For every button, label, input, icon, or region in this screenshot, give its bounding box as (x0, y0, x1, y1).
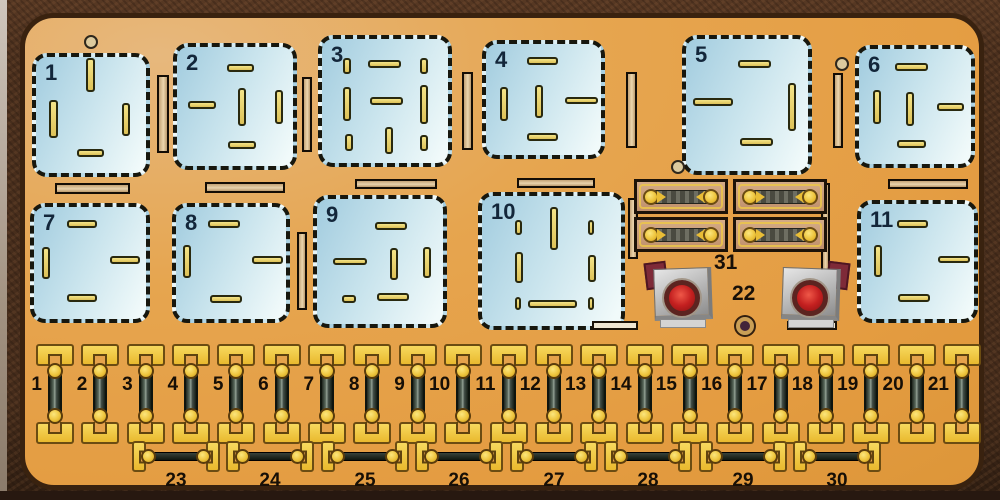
fuse-cap-bottom (546, 408, 562, 424)
relay-pin-slot (588, 220, 594, 235)
relay-number: 6 (868, 52, 880, 78)
holder-cap-right (703, 189, 719, 205)
relay-pin-slot (423, 247, 431, 278)
connector-bar-vertical (833, 73, 843, 148)
fuse-cap-right (574, 449, 589, 464)
fuse-8: 8 (352, 344, 392, 448)
fuse-12: 12 (534, 344, 574, 448)
fuse-number: 30 (793, 470, 881, 492)
relay-pin-slot (693, 98, 733, 106)
relay-pin-slot (515, 252, 523, 283)
relay-pin-slot (588, 297, 594, 310)
relay-pin-slot (228, 141, 256, 149)
relay-pin-slot (210, 295, 242, 303)
fuse-number: 10 (410, 374, 450, 396)
fuse-6: 6 (262, 344, 302, 448)
fuse-19: 19 (851, 344, 891, 448)
fuse-cap-bottom (319, 408, 335, 424)
fuse-10: 10 (443, 344, 483, 448)
relay-pin-slot (515, 220, 522, 235)
fuse-cap-bottom (410, 408, 426, 424)
fuse-number: 8 (319, 374, 359, 396)
connector-bar-horizontal (888, 179, 968, 189)
fuse-4: 4 (171, 344, 211, 448)
connector-bar-small (592, 321, 638, 330)
relay-pin-slot (738, 60, 771, 68)
connector-bar-vertical (302, 77, 312, 152)
fuse-16: 16 (715, 344, 755, 448)
fuse-number: 26 (415, 470, 503, 492)
test-point-22 (736, 317, 754, 335)
fuse-cap-bottom (954, 408, 970, 424)
relay-pin-slot (375, 222, 407, 230)
fuse-number: 2 (47, 374, 87, 396)
fuse-26: 26 (415, 441, 503, 491)
relay-pin-slot (897, 140, 926, 148)
main-fuse-holder (733, 179, 827, 214)
connector-bar-vertical (626, 72, 637, 148)
diagram-content: 31 22 1234567891011123456789101112131415… (0, 0, 1000, 500)
fuse-11: 11 (489, 344, 529, 448)
fuse-cap-bottom (138, 408, 154, 424)
fuse-cap-right (290, 449, 305, 464)
test-point-label: 22 (732, 282, 755, 306)
connector-bar-vertical (297, 232, 307, 310)
fuse-cap-left (424, 449, 439, 464)
fuse-cap-left (141, 449, 156, 464)
holder-cap-arrow-left (756, 191, 765, 203)
relay-pin-slot (500, 87, 508, 121)
fuse-number: 25 (321, 470, 409, 492)
relay-pin-slot (275, 90, 283, 124)
fuse-20: 20 (897, 344, 937, 448)
relay-pin-slot (588, 255, 596, 282)
mount-hole (835, 57, 849, 71)
fuse-cap-right (763, 449, 778, 464)
relay-pin-slot (227, 64, 254, 72)
fuse-number: 9 (365, 374, 405, 396)
fuse-number: 15 (637, 374, 677, 396)
relay-pin-slot (238, 88, 246, 126)
fuse-27: 27 (510, 441, 598, 491)
fuse-cap-bottom (773, 408, 789, 424)
fuse-7: 7 (307, 344, 347, 448)
fuse-number: 16 (682, 374, 722, 396)
holder-cap-right (802, 227, 818, 243)
fuse-number: 5 (183, 374, 223, 396)
relay-pin-slot (188, 101, 216, 109)
relay-pin-slot (345, 134, 353, 151)
button-component (776, 262, 846, 330)
fuse-number: 1 (2, 374, 42, 396)
relay-pin-slot (565, 97, 598, 104)
fuse-cap-right (857, 449, 872, 464)
relay-pin-slot (342, 295, 356, 303)
relay-pin-slot (110, 256, 140, 264)
fuse-number: 6 (229, 374, 269, 396)
fuse-bracket-bottom (943, 422, 981, 444)
fuse-number: 4 (138, 374, 178, 396)
relay-pin-slot (67, 294, 97, 302)
relay-number: 7 (43, 210, 55, 236)
relay-pin-slot (788, 83, 796, 131)
fuse-cap-bottom (274, 408, 290, 424)
relay-pin-slot (42, 247, 50, 279)
relay-number: 1 (45, 60, 57, 86)
fuse-cap-top (954, 363, 970, 379)
relay-pin-slot (420, 58, 428, 74)
relay-pin-slot (67, 220, 97, 228)
fuse-cap-bottom (909, 408, 925, 424)
relay-pin-slot (390, 248, 398, 280)
fuse-cap-bottom (47, 408, 63, 424)
fuse-number: 13 (546, 374, 586, 396)
relay-pin-slot (740, 138, 773, 146)
fuse-number: 28 (604, 470, 692, 492)
fuse-number: 17 (728, 374, 768, 396)
fuse-15: 15 (670, 344, 710, 448)
main-fuse-holder (634, 217, 728, 252)
fuse-number: 12 (501, 374, 541, 396)
holder-cap-arrow-left (657, 191, 666, 203)
fuse-bracket-bottom (81, 422, 119, 444)
fuse-5: 5 (216, 344, 256, 448)
fuse-number: 20 (864, 374, 904, 396)
fuse-cap-right (668, 449, 683, 464)
relay-pin-slot (938, 256, 970, 263)
component-base (660, 319, 706, 328)
relay-pin-slot (343, 58, 351, 74)
fuse-bracket-bottom (36, 422, 74, 444)
fuse-cap-bottom (183, 408, 199, 424)
mount-hole (84, 35, 98, 49)
fuse-cap-bottom (682, 408, 698, 424)
button-component (648, 262, 718, 330)
relay-pin-slot (208, 220, 240, 228)
fuse-28: 28 (604, 441, 692, 491)
relay-pin-slot (86, 58, 95, 92)
red-button (664, 280, 700, 316)
fuse-cap-left (613, 449, 628, 464)
holder-cap-right (802, 189, 818, 205)
fuse-cap-right (385, 449, 400, 464)
fuse-bracket-bottom (898, 422, 936, 444)
relay-pin-slot (370, 97, 403, 105)
fuse-number: 23 (132, 470, 220, 492)
connector-bar-horizontal (517, 178, 595, 188)
relay-pin-slot (535, 85, 543, 118)
fuse-cap-left (519, 449, 534, 464)
fuse-cap-left (802, 449, 817, 464)
fuse-cap-left (708, 449, 723, 464)
fuse-21: 21 (942, 344, 982, 448)
fuse-17: 17 (761, 344, 801, 448)
relay-pin-slot (528, 300, 577, 308)
fuse-23: 23 (132, 441, 220, 491)
connector-bar-horizontal (355, 179, 437, 189)
relay-number: 2 (186, 50, 198, 76)
fuse-14: 14 (625, 344, 665, 448)
fuse-cap-right (196, 449, 211, 464)
relay-pin-slot (937, 103, 964, 111)
relay-pin-slot (897, 220, 928, 228)
red-button (792, 280, 828, 316)
relay-pin-slot (377, 293, 409, 301)
fuse-cap-left (235, 449, 250, 464)
relay-number: 4 (495, 47, 507, 73)
relay-pin-slot (333, 258, 367, 265)
fuse-18: 18 (806, 344, 846, 448)
fuse-2: 2 (80, 344, 120, 448)
relay-pin-slot (122, 103, 130, 136)
relay-pin-slot (343, 87, 351, 121)
mount-hole (671, 160, 685, 174)
relay-number: 3 (331, 42, 343, 68)
relay-pin-slot (873, 90, 881, 124)
holder-cap-right (703, 227, 719, 243)
fuse-cap-bottom (637, 408, 653, 424)
fuse-9: 9 (398, 344, 438, 448)
holder-cap-arrow-left (657, 229, 666, 241)
relay-pin-slot (898, 294, 930, 302)
main-fuse-holder (733, 217, 827, 252)
fuse-number: 3 (93, 374, 133, 396)
fuse-cap-right (479, 449, 494, 464)
fuse-cap-bottom (818, 408, 834, 424)
fuse-number: 14 (592, 374, 632, 396)
fuse-number: 24 (226, 470, 314, 492)
relay-pin-slot (895, 63, 928, 71)
relay-pin-slot (420, 85, 428, 124)
fuse-number: 29 (699, 470, 787, 492)
fuse-number: 27 (510, 470, 598, 492)
connector-bar-vertical (462, 72, 473, 150)
main-fuse-holder (634, 179, 728, 214)
relay-number: 10 (491, 199, 515, 225)
fuse-24: 24 (226, 441, 314, 491)
relay-pin-slot (252, 256, 283, 264)
fuse-number: 19 (818, 374, 858, 396)
fuse-number: 21 (909, 374, 949, 396)
connector-bar-vertical (157, 75, 169, 153)
fuse-number: 7 (274, 374, 314, 396)
relay-pin-slot (874, 245, 882, 277)
fuse-13: 13 (579, 344, 619, 448)
relay-pin-slot (527, 57, 558, 65)
relay-pin-slot (77, 149, 104, 157)
relay-pin-slot (527, 133, 558, 141)
relay-number: 9 (326, 202, 338, 228)
fuse-30: 30 (793, 441, 881, 491)
relay-pin-slot (368, 60, 401, 68)
fuse-25: 25 (321, 441, 409, 491)
relay-pin-slot (420, 135, 428, 151)
relay-number: 11 (870, 207, 893, 233)
fuse-3: 3 (126, 344, 166, 448)
component-base (788, 319, 834, 328)
relay-pin-slot (183, 245, 191, 278)
connector-bar-horizontal (55, 183, 130, 194)
fuse-number: 11 (456, 374, 496, 396)
fuse-number: 18 (773, 374, 813, 396)
fuse-cap-bottom (501, 408, 517, 424)
relay-pin-slot (515, 297, 521, 310)
connector-bar-horizontal (205, 182, 285, 193)
relay-pin-slot (385, 127, 393, 154)
fuse-1: 1 (35, 344, 75, 448)
relay-pin-slot (550, 207, 558, 250)
relay-pin-slot (49, 100, 58, 138)
relay-pin-slot (906, 92, 914, 126)
holder-cap-arrow-left (756, 229, 765, 241)
fuse-cap-left (330, 449, 345, 464)
relay-number: 5 (695, 42, 707, 68)
relay-number: 8 (185, 210, 197, 236)
fuse-29: 29 (699, 441, 787, 491)
